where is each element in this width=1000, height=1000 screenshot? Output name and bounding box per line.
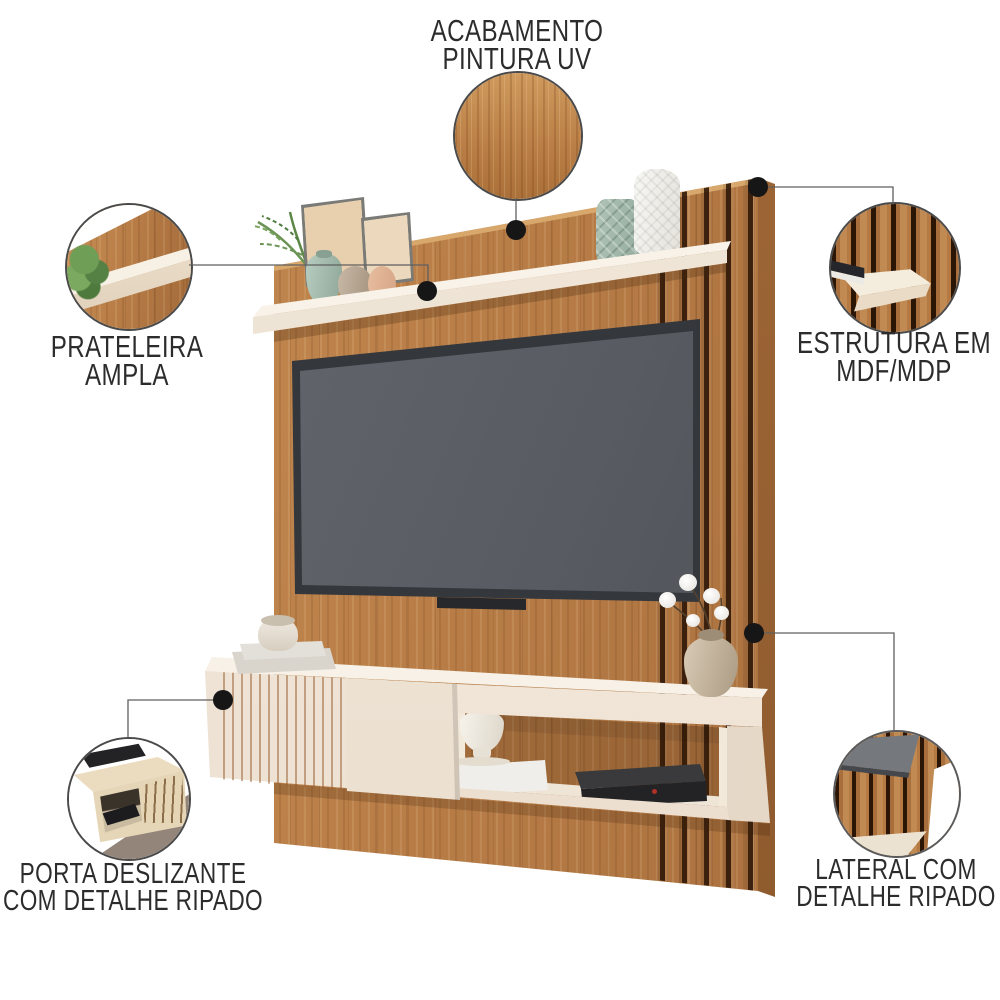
label-side-line2: DETALHE RIPADO: [796, 884, 995, 911]
cotton-vase-mouth: [698, 629, 724, 641]
cotton-vase: [684, 636, 738, 697]
callout-circle-side: [833, 730, 961, 858]
white-diamond-vase: [634, 169, 680, 255]
finish-wood-texture: [455, 73, 581, 199]
receiver-led: [652, 789, 657, 794]
cotton-puff: [679, 574, 697, 591]
label-finish-line2: PINTURA UV: [431, 45, 604, 73]
label-sliding-door-line2: COM DETALHE RIPADO: [3, 888, 263, 915]
label-structure-line2: MDF/MDP: [797, 357, 991, 385]
pedestal-cup-saucer: [452, 757, 510, 766]
label-side-line1: LATERAL COM: [796, 857, 995, 884]
label-shelf-line2: AMPLA: [51, 361, 204, 389]
green-vase-rim: [316, 250, 332, 258]
dot-finish: [506, 220, 526, 240]
callout-circle-finish: [453, 71, 583, 201]
cotton-puff: [703, 588, 720, 604]
label-sliding-door: PORTA DESLIZANTE COM DETALHE RIPADO: [3, 861, 263, 915]
cotton-puff: [686, 614, 700, 627]
callout-circle-shelf: [65, 203, 193, 331]
cotton-puff: [659, 592, 676, 608]
dot-structure: [748, 177, 768, 197]
label-structure: ESTRUTURA EM MDF/MDP: [797, 329, 991, 385]
label-side: LATERAL COM DETALHE RIPADO: [796, 857, 995, 911]
shelf-detail-plant: [67, 205, 191, 329]
cotton-puff: [714, 606, 729, 620]
label-shelf: PRATELEIRA AMPLA: [51, 333, 204, 389]
dot-sliding-door: [213, 690, 233, 710]
line-side: [754, 633, 894, 731]
label-finish: ACABAMENTO PINTURA UV: [431, 17, 604, 73]
line-structure: [758, 187, 893, 204]
dot-side: [744, 623, 764, 643]
callout-circle-sliding-door: [67, 737, 191, 861]
product-image: ACABAMENTO PINTURA UV PRATELEIRA AMPLA E…: [0, 0, 1000, 1000]
callout-circle-structure: [829, 202, 961, 334]
label-sliding-door-line1: PORTA DESLIZANTE: [3, 861, 263, 888]
cream-bowl-rim: [261, 615, 295, 626]
dot-shelf: [417, 281, 437, 301]
